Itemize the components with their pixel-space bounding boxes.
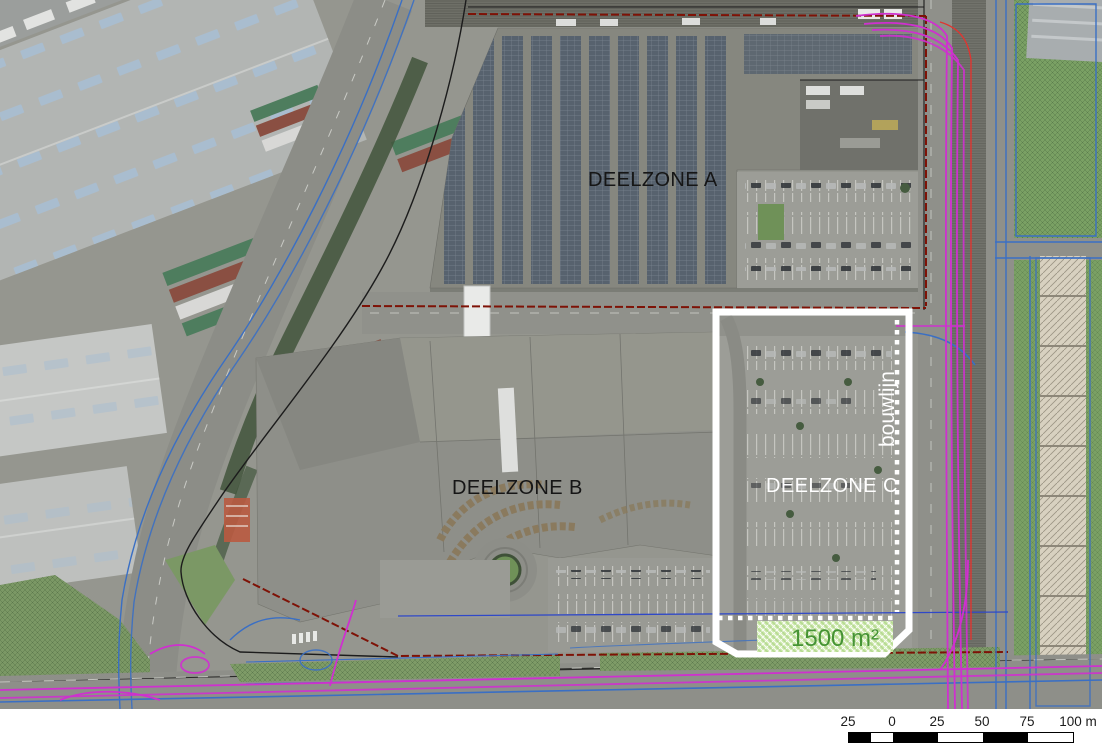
scalebar-tick-label: 25: [929, 714, 944, 729]
deelzone-a-parking: [737, 172, 919, 288]
deelzone-c-label: DEELZONE C: [766, 475, 898, 497]
scalebar-tick-label: 75: [1019, 714, 1034, 729]
scalebar-tick-label: 0: [888, 714, 896, 729]
scalebar-tick-label: 50: [974, 714, 989, 729]
deelzone-b-label: DEELZONE B: [452, 477, 583, 499]
scalebar-segment: [871, 733, 893, 742]
scalebar-segment: [893, 733, 938, 742]
screenshot: DEELZONE A DEELZONE B DEELZONE C bouwlij…: [0, 0, 1102, 753]
scalebar-segment: [983, 733, 1028, 742]
aerial-basemap: [0, 0, 1102, 709]
footer: 25 0 25 50 75 100 m: [0, 709, 1102, 753]
scalebar-segment: [849, 733, 871, 742]
aerial-map-canvas: DEELZONE A DEELZONE B DEELZONE C bouwlij…: [0, 0, 1102, 709]
scalebar-segment: [938, 733, 983, 742]
rail-yard: [425, 0, 930, 27]
aerial-map: DEELZONE A DEELZONE B DEELZONE C bouwlij…: [0, 0, 1102, 709]
red-canopy: [224, 498, 250, 542]
bouwlijn-label: bouwlijn: [876, 371, 899, 447]
scalebar-tick-label: 100 m: [1059, 714, 1097, 729]
green-field-east: [1014, 0, 1102, 709]
scalebar-tick-label: 25: [840, 714, 855, 729]
houses-east: [1040, 256, 1086, 709]
area-1500-label: 1500 m²: [791, 625, 879, 652]
scale-bar: [848, 732, 1074, 743]
deelzone-a-label: DEELZONE A: [588, 169, 718, 191]
scalebar-segment: [1028, 733, 1073, 742]
